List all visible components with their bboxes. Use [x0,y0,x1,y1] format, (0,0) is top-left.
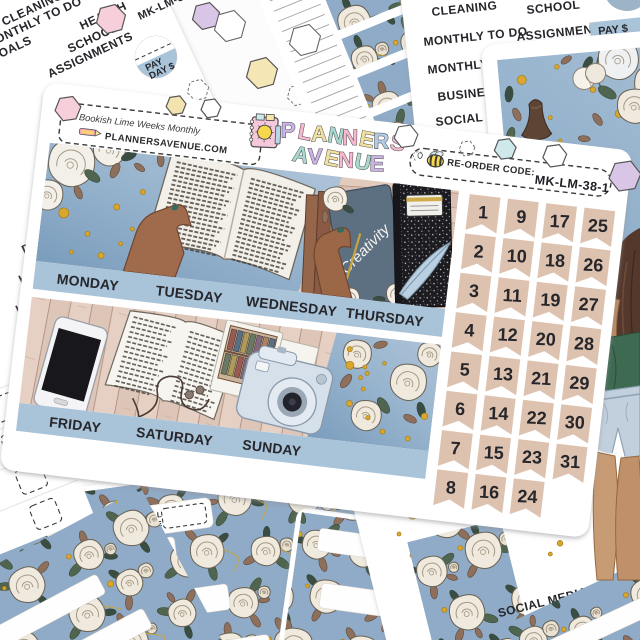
svg-text:18: 18 [545,250,566,271]
svg-text:9: 9 [516,207,527,227]
svg-text:24: 24 [517,486,538,507]
svg-text:19: 19 [540,290,561,311]
svg-text:3: 3 [469,281,480,301]
svg-text:17: 17 [549,211,570,232]
svg-text:R: R [373,128,389,153]
svg-text:A: A [311,121,327,146]
svg-text:22: 22 [526,407,547,428]
svg-text:8: 8 [445,477,456,497]
svg-text:11: 11 [502,285,522,306]
svg-text:14: 14 [488,403,509,424]
svg-text:20: 20 [535,329,556,350]
svg-text:16: 16 [479,482,500,503]
svg-text:1: 1 [478,202,489,222]
svg-text:12: 12 [497,324,518,345]
svg-text:2: 2 [473,241,484,261]
svg-text:7: 7 [450,438,461,458]
svg-text:5: 5 [459,359,470,379]
svg-text:10: 10 [506,246,527,267]
svg-text:31: 31 [560,451,581,472]
svg-text:13: 13 [493,364,514,385]
svg-text:28: 28 [574,333,595,354]
svg-text:27: 27 [578,294,599,315]
svg-text:E: E [369,151,384,176]
svg-text:23: 23 [522,447,543,468]
svg-text:26: 26 [583,255,604,276]
svg-text:30: 30 [564,412,585,433]
svg-text:N: N [342,125,358,150]
svg-text:6: 6 [455,399,466,419]
svg-text:N: N [338,147,355,172]
svg-text:V: V [307,144,323,169]
svg-text:15: 15 [483,442,504,463]
svg-text:25: 25 [587,215,608,236]
svg-text:4: 4 [464,320,475,340]
svg-text:21: 21 [531,368,552,389]
svg-text:29: 29 [569,373,590,394]
svg-text:P: P [281,117,296,142]
